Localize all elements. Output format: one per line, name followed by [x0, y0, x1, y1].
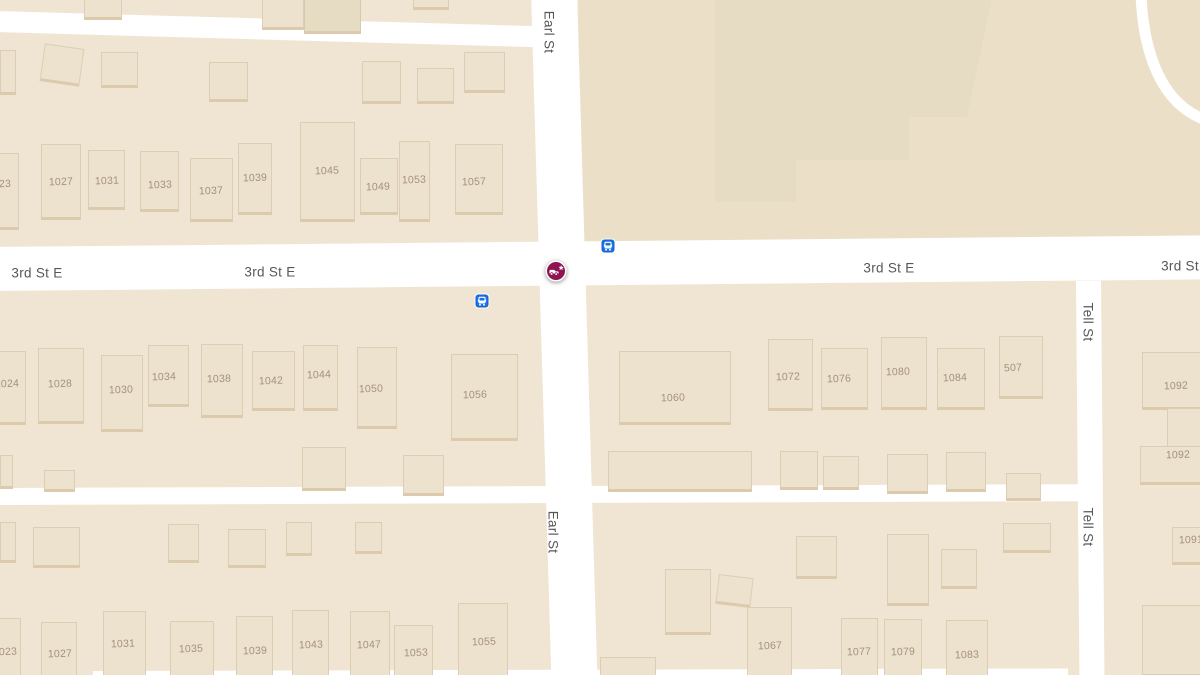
building-507 [999, 336, 1043, 399]
building [44, 470, 75, 492]
building-1076 [821, 348, 868, 410]
building-1044 [303, 345, 338, 411]
building [780, 451, 818, 490]
building-1060 [619, 351, 731, 425]
building-1053 [394, 625, 433, 675]
building-1038 [201, 344, 243, 418]
building-1027 [41, 144, 81, 220]
building [355, 522, 382, 554]
building-1091 [1172, 527, 1200, 565]
building [40, 43, 85, 86]
building [887, 534, 929, 606]
building-1028 [38, 348, 84, 424]
crash-icon-glyph [545, 260, 568, 283]
building-1080 [881, 337, 927, 410]
building-1077 [841, 618, 878, 675]
building-23 [0, 153, 19, 230]
building-1024 [0, 351, 26, 425]
building-1037 [190, 158, 233, 222]
building [101, 52, 138, 88]
building-1055 [458, 603, 508, 675]
building-1053 [399, 141, 430, 222]
building-1023 [0, 618, 21, 675]
building [0, 455, 13, 489]
building-1047 [350, 611, 390, 675]
building-1034 [148, 345, 189, 407]
building-1049 [360, 158, 398, 215]
building-1083 [946, 620, 988, 675]
building [1006, 473, 1041, 501]
building-1079 [884, 619, 922, 675]
building [1003, 523, 1051, 553]
building-1057 [455, 144, 503, 215]
building-1039 [238, 143, 272, 215]
building [823, 456, 859, 490]
building [796, 536, 837, 579]
building [302, 447, 346, 491]
building [262, 0, 304, 30]
bus-icon-glyph [476, 295, 489, 308]
building [168, 524, 199, 563]
building [304, 0, 361, 34]
building [84, 0, 122, 20]
building-1039 [236, 616, 273, 675]
building [417, 68, 454, 104]
crash-incident-icon[interactable] [545, 260, 568, 283]
map-canvas[interactable]: 2310271031103310371039104510491053105710… [0, 0, 1200, 675]
building-1033 [140, 151, 179, 212]
building [665, 569, 711, 635]
building [0, 50, 16, 95]
building [228, 529, 266, 568]
building [209, 62, 248, 102]
building [403, 455, 444, 496]
building [464, 52, 505, 93]
building [946, 452, 986, 492]
building-1072 [768, 339, 813, 411]
building [413, 0, 449, 10]
road-3rd-st-e [0, 235, 1200, 291]
building-1031 [103, 611, 146, 675]
building [715, 574, 753, 608]
building-1031 [88, 150, 125, 210]
building [286, 522, 312, 556]
building-1030 [101, 355, 143, 432]
building-1056 [451, 354, 518, 441]
bus-stop-icon[interactable] [476, 295, 489, 308]
road-tell-st [1076, 281, 1104, 675]
building-1035 [170, 621, 214, 675]
building-1050 [357, 347, 397, 429]
building-1084 [937, 348, 985, 410]
building [600, 657, 656, 675]
building-1027 [41, 622, 77, 675]
building-1045 [300, 122, 355, 222]
building [0, 522, 16, 563]
building [362, 61, 401, 104]
building [1142, 605, 1200, 675]
building-1067 [747, 607, 792, 675]
bus-icon-glyph [602, 240, 615, 253]
building [941, 549, 977, 589]
building [1167, 408, 1200, 450]
building [608, 451, 752, 492]
building-1043 [292, 610, 329, 675]
building-1092 [1142, 352, 1200, 410]
bus-stop-icon[interactable] [602, 240, 615, 253]
building-1092 [1140, 446, 1200, 485]
building [887, 454, 928, 494]
building-1042 [252, 351, 295, 411]
building [33, 527, 80, 568]
